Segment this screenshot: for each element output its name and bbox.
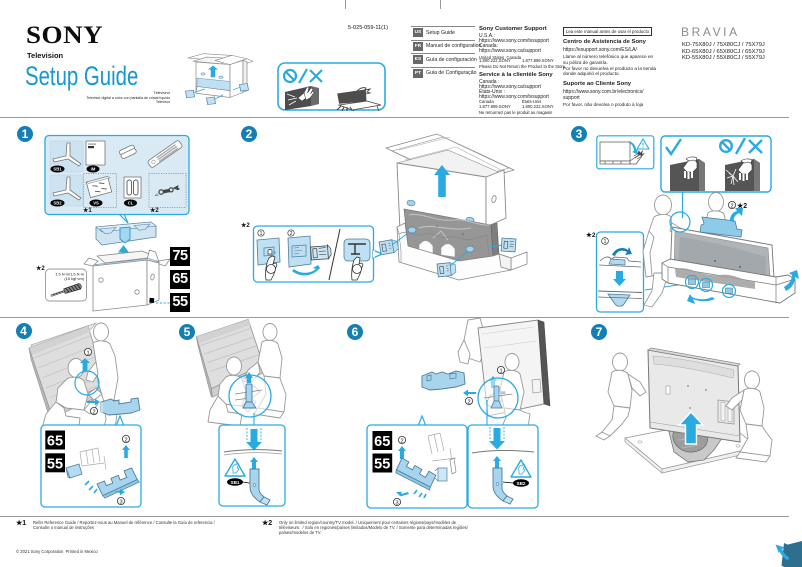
svg-text:SB1: SB1 xyxy=(53,167,62,172)
svg-text:3: 3 xyxy=(119,499,122,505)
svg-text:3: 3 xyxy=(395,500,398,506)
svg-text:1: 1 xyxy=(499,368,502,374)
svg-text:1: 1 xyxy=(260,231,263,237)
svg-text:2: 2 xyxy=(290,231,293,237)
svg-text:CL: CL xyxy=(128,201,134,206)
svg-text:2: 2 xyxy=(400,438,403,444)
svg-text:65: 65 xyxy=(47,434,63,450)
svg-text:SB1: SB1 xyxy=(231,480,240,485)
svg-text:2: 2 xyxy=(124,437,127,443)
svg-text:SB2: SB2 xyxy=(53,201,62,206)
svg-text:VS: VS xyxy=(93,201,99,206)
svg-text:SB2: SB2 xyxy=(517,481,526,486)
svg-text:2: 2 xyxy=(730,203,733,209)
svg-text:1: 1 xyxy=(86,350,89,356)
svg-text:1: 1 xyxy=(604,239,607,245)
svg-text:SB: SB xyxy=(501,391,506,395)
svg-text:2: 2 xyxy=(467,399,470,405)
svg-text:IM: IM xyxy=(91,167,96,172)
svg-text:65: 65 xyxy=(374,434,390,450)
svg-text:(15 kgf·cm): (15 kgf·cm) xyxy=(64,276,84,281)
svg-text:55: 55 xyxy=(374,457,390,473)
svg-text:★2: ★2 xyxy=(586,231,596,239)
svg-text:55: 55 xyxy=(47,456,63,472)
